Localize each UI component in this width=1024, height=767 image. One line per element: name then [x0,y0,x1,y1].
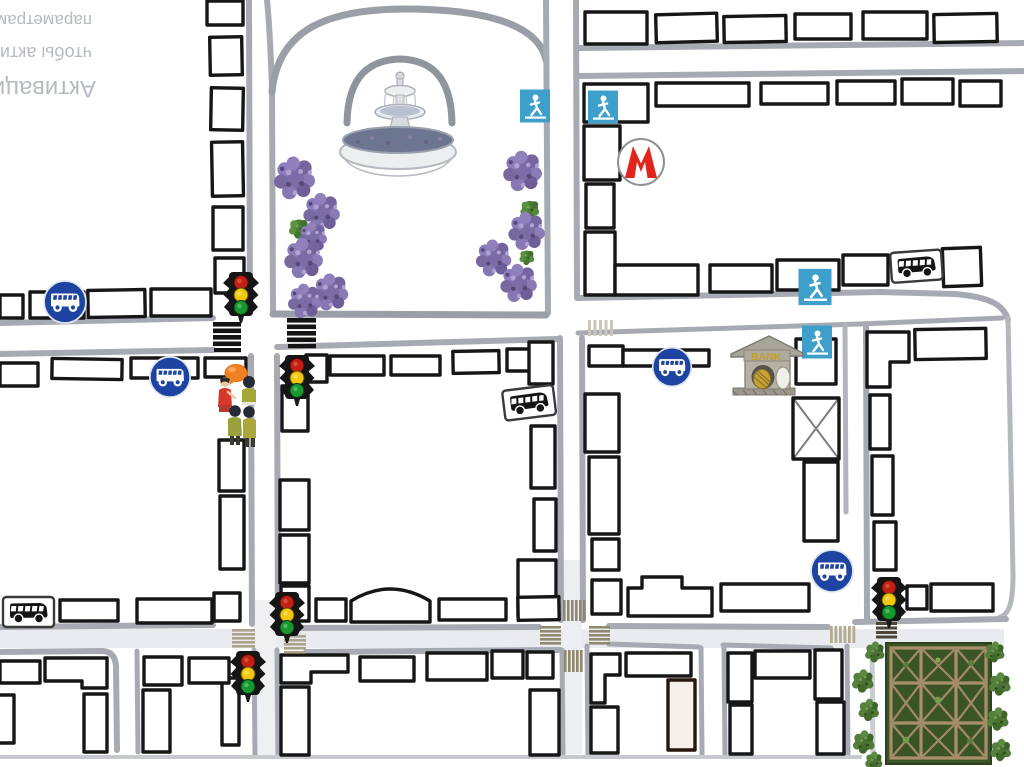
svg-text:Активация: Активация [0,75,96,102]
svg-text:чтобы актив: чтобы актив [0,43,92,63]
svg-text:параметрам: параметрам [0,11,92,30]
svg-text:BANK: BANK [751,351,782,363]
